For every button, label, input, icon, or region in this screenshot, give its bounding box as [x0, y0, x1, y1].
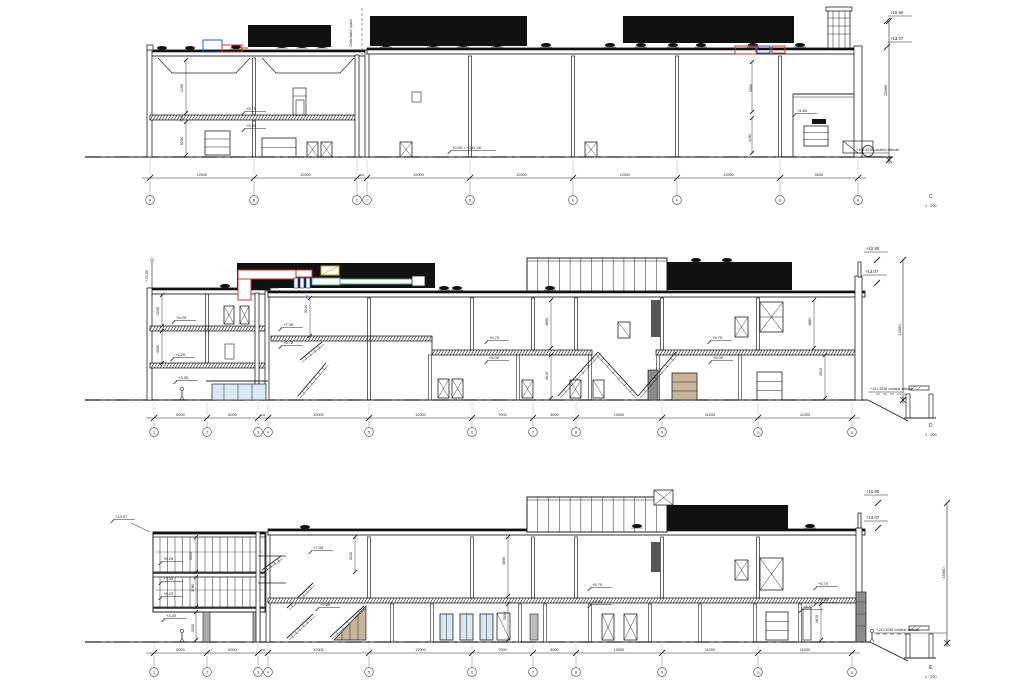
- level-label: +6.78: [283, 340, 294, 345]
- level-label: +5.70: [818, 581, 829, 586]
- level-label: +7.35: [313, 545, 324, 550]
- grid-bubble-label: 3: [257, 671, 259, 675]
- grid-bubble-label: 11: [850, 431, 853, 435]
- dim-text: 4050: [156, 345, 160, 353]
- level-label: +4.60: [797, 108, 808, 113]
- drawing-sheet: ABCC'DEFGH120001200060012000120001200012…: [0, 0, 1024, 690]
- span-dim-text: 600: [261, 413, 266, 417]
- grid-bubble-label: G: [779, 199, 782, 203]
- level-label: +5.70: [712, 335, 723, 340]
- span-dim-text: 7000: [498, 413, 506, 417]
- level-label: +5.70: [246, 106, 257, 111]
- height-dim-text: 15980: [897, 324, 902, 336]
- grid-bubble-label: 5: [368, 671, 370, 675]
- level-leader-label: +15.90: [866, 489, 880, 494]
- section-scale: 1 : 200: [925, 204, 937, 208]
- span-dim-text: 12000: [415, 413, 426, 417]
- elevation-sections-drawing: ABCC'DEFGH120001200060012000120001200012…: [0, 0, 1024, 690]
- dim-text: 4510: [819, 368, 823, 376]
- level-label: +7.35: [283, 322, 294, 327]
- span-dim-text: 12000: [415, 648, 426, 652]
- level-label: +5.30: [246, 123, 257, 128]
- span-dim-text: 6000: [176, 648, 184, 652]
- grid-bubble-label: 9: [661, 431, 663, 435]
- span-dim-text: 6000: [228, 413, 236, 417]
- section-scale: 1 : 200: [925, 433, 937, 437]
- grid-bubble-label: 2: [206, 431, 208, 435]
- span-dim-text: 12000: [620, 173, 631, 177]
- dim-text: 3030: [503, 612, 507, 620]
- note-text: Deformační spára: [349, 19, 353, 46]
- span-dim-text: 6000: [228, 648, 236, 652]
- dim-text: 4880: [808, 318, 812, 326]
- grid-bubble-label: 8: [575, 671, 577, 675]
- datum-label: +141.3238 volutine altitude: [856, 148, 899, 152]
- level-label: +5.70: [489, 335, 500, 340]
- dim-text: 3500: [189, 552, 193, 560]
- level-leader-label: +15.90: [866, 246, 880, 251]
- level-label: +3.30: [178, 375, 189, 380]
- section-scale: 1 : 200: [925, 675, 937, 679]
- grid-bubble-label: 6: [471, 431, 473, 435]
- span-dim-text: 5000: [550, 413, 558, 417]
- grid-bubble-label: 2: [206, 671, 208, 675]
- grid-bubble-label: D: [469, 199, 472, 203]
- level-label: +5.00: [592, 599, 603, 604]
- span-dim-text: 5000: [550, 648, 558, 652]
- span-dim-text: 12000: [313, 413, 324, 417]
- span-dim-text: 11000: [705, 648, 715, 652]
- section-name: C: [929, 194, 933, 200]
- level-label: +4.20: [163, 591, 174, 596]
- span-dim-text: 10000: [614, 648, 625, 652]
- dim-text: 4890: [502, 557, 506, 565]
- grid-bubble-label: 9: [661, 671, 663, 675]
- grid-bubble-label: 1: [153, 671, 155, 675]
- section-c: ABCC'DEFGH120001200060012000120001200012…: [85, 7, 937, 208]
- level-label: +5.00: [818, 597, 829, 602]
- grid-bubble-label: 1: [153, 431, 155, 435]
- dim-text: 3230: [156, 307, 160, 315]
- grid-bubble-label: 5: [368, 431, 370, 435]
- span-dim-text: 7000: [498, 648, 506, 652]
- span-dim-text: 12000: [413, 173, 424, 177]
- level-label: +5.00: [713, 355, 724, 360]
- dim-text: 3240: [349, 552, 353, 560]
- span-dim-text: 12000: [300, 173, 311, 177]
- grid-bubble-label: C': [366, 199, 369, 203]
- grid-bubble-label: 4: [267, 431, 269, 435]
- height-dim-text: 15980: [883, 84, 888, 96]
- level-leader-label: +15.90: [890, 10, 904, 15]
- level-label: +4.81: [803, 604, 814, 609]
- span-dim-text: 11000: [800, 648, 810, 652]
- level-leader-label: +13.07: [865, 269, 879, 274]
- grid-bubble-label: E: [572, 199, 575, 203]
- grid-bubble-label: H: [857, 199, 860, 203]
- dim-text: 3780: [191, 584, 195, 592]
- span-dim-text: 12000: [313, 648, 324, 652]
- section-d: 1234567891011600060006001200012000700050…: [85, 246, 937, 437]
- span-dim-text: 600: [261, 648, 266, 652]
- section-name: E: [929, 665, 933, 671]
- dim-text: 5200: [180, 137, 184, 145]
- level-leader-label: +13.07: [890, 36, 904, 41]
- section-e: 1234567891011600060006001200012000700050…: [85, 489, 950, 679]
- span-dim-text: 10000: [614, 413, 625, 417]
- level-label: +3.20: [166, 613, 177, 618]
- level-label: +3.85: [320, 602, 331, 607]
- level-label: +5.70: [592, 582, 603, 587]
- dim-text: 4890: [545, 318, 549, 326]
- grid-bubble-label: 3: [257, 431, 259, 435]
- dim-text: 5680: [749, 84, 753, 92]
- grid-bubble-label: 4: [267, 671, 269, 675]
- dim-text: 4150: [748, 134, 752, 142]
- grid-bubble-label: 7: [532, 671, 534, 675]
- dim-text: +15.90: [145, 270, 149, 282]
- span-dim-text: 11000: [705, 413, 715, 417]
- span-dim-text: 9000: [815, 173, 823, 177]
- dim-text: 700: [180, 116, 184, 122]
- level-label: +8.25: [163, 556, 174, 561]
- span-dim-text: 12000: [197, 173, 208, 177]
- height-dim-text: 15980: [941, 567, 946, 579]
- datum-label: +141.3238 volutine altitude: [876, 628, 919, 632]
- level-leader-label: +13.07: [866, 515, 880, 520]
- dim-text: 4190: [180, 84, 184, 92]
- span-dim-text: 600: [360, 173, 365, 177]
- level-label: +5.30: [489, 355, 500, 360]
- grid-bubble-label: A: [149, 199, 152, 203]
- span-dim-text: 6000: [176, 413, 184, 417]
- grid-bubble-label: 7: [532, 431, 534, 435]
- span-dim-text: 11000: [800, 413, 810, 417]
- grid-bubble-label: 10: [756, 431, 760, 435]
- span-dim-text: 12000: [723, 173, 734, 177]
- grid-bubble-label: C: [356, 199, 359, 203]
- dim-text: 4515: [545, 372, 549, 380]
- level-label: +0.00 = +141.40: [452, 145, 482, 150]
- grid-bubble-label: B: [253, 199, 256, 203]
- section-name: D: [929, 423, 933, 429]
- level-label: +7.35: [163, 576, 174, 581]
- dim-text: 3240: [304, 305, 308, 313]
- span-dim-text: 12000: [516, 173, 527, 177]
- level-label: +4.20: [175, 352, 186, 357]
- grid-bubble-label: 8: [575, 431, 577, 435]
- datum-label: +141.3238 volutine altitude: [870, 387, 913, 391]
- grid-bubble-label: 6: [471, 671, 473, 675]
- grid-bubble-label: 10: [756, 671, 760, 675]
- grid-bubble-label: 11: [850, 671, 853, 675]
- dim-text: 4810: [815, 615, 819, 623]
- level-label: +8.25: [176, 315, 187, 320]
- dim-text: 3200: [191, 624, 195, 632]
- level-label: +13.07: [115, 514, 128, 519]
